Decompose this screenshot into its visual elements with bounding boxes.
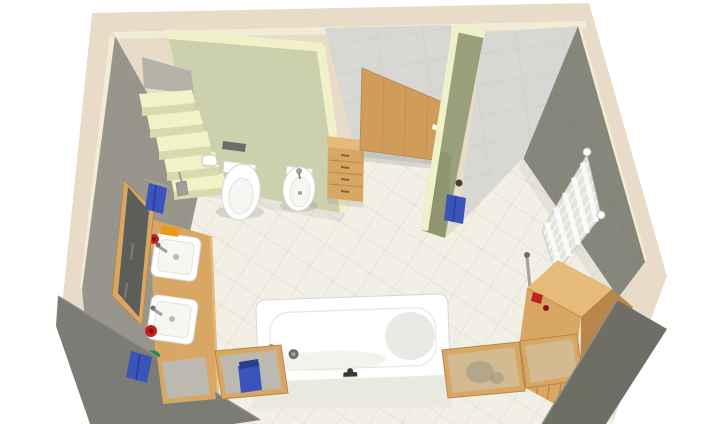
red-item xyxy=(543,305,549,311)
panel-reflection xyxy=(490,372,504,384)
glass-panel-a[interactable] xyxy=(157,352,216,404)
drawer-cabinet[interactable] xyxy=(326,136,364,208)
panel-glass xyxy=(162,357,210,399)
bidet[interactable] xyxy=(280,166,318,212)
paper-sheet xyxy=(204,165,216,166)
drawer-handle xyxy=(341,155,349,156)
brush-cup xyxy=(176,181,188,196)
washbasin-2[interactable] xyxy=(146,294,199,345)
radiator-mount xyxy=(597,211,605,219)
radiator-mount xyxy=(583,148,591,156)
faucet-handle xyxy=(151,306,156,311)
toilet-paper-holder[interactable] xyxy=(202,155,217,167)
glass-panel-c[interactable] xyxy=(442,342,525,398)
glass-panel-b[interactable] xyxy=(215,345,288,399)
panel-reflection xyxy=(466,361,494,383)
drawer-handle xyxy=(341,167,349,168)
drawer-handle xyxy=(341,179,349,180)
towel-hook xyxy=(456,180,463,187)
radiator-valve xyxy=(524,252,530,258)
bidet-spout xyxy=(299,173,300,179)
soap-dispenser-pump xyxy=(149,329,154,334)
bidet-drain xyxy=(298,191,302,195)
soap-dispenser-pump xyxy=(152,237,156,241)
drawer-handle xyxy=(341,191,349,192)
bathroom-3d-render xyxy=(0,0,720,424)
